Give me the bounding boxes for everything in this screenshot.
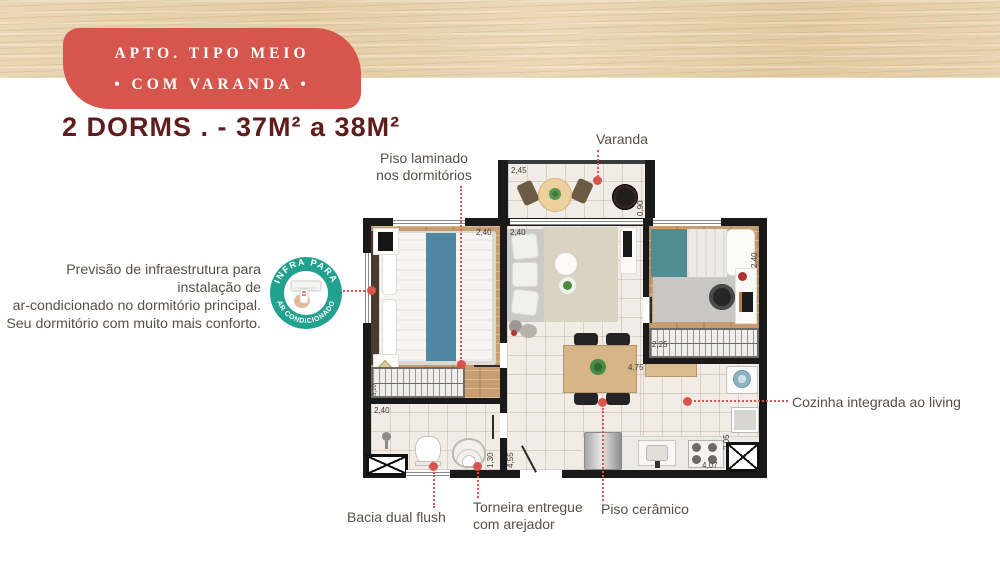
badge-line-1: APTO. TIPO MEIO: [63, 45, 361, 63]
leader-bacia: [433, 472, 435, 508]
sink-basin: [646, 445, 668, 461]
label-piso-laminado: Piso laminado nos dormitórios: [348, 150, 500, 183]
apartment-type-badge: APTO. TIPO MEIO • COM VARANDA •: [63, 28, 361, 109]
burner: [708, 443, 717, 452]
wall-living-dorm2-upper: [643, 226, 649, 297]
marker-piso-ceramico: [598, 398, 607, 407]
bed-runner-blue: [426, 233, 456, 361]
infra-ac-badge-icon: INFRA PARA AR CONDICIONADO: [269, 256, 343, 330]
bath-door-leaf: [492, 415, 494, 439]
laundry-sink: [732, 408, 758, 432]
living-rug: [542, 227, 618, 322]
tv-master-bedroom: [378, 232, 393, 251]
balcony-wall-right: [645, 160, 655, 226]
balcony-wall-left: [498, 160, 508, 226]
window-bathroom: [406, 470, 450, 478]
dim-dorm1-closet: 3,10: [372, 384, 378, 396]
flower-vase: [738, 272, 747, 281]
dining-chair: [574, 392, 598, 405]
dorm2-door-leaf: [650, 297, 652, 323]
wall-right: [759, 218, 767, 478]
label-cozinha: Cozinha integrada ao living: [792, 394, 961, 411]
dim-bath-width: 2,40: [374, 406, 390, 415]
wall-dorm1-living-upper: [500, 226, 507, 343]
entry-door-gap: [520, 470, 562, 478]
tv-living: [623, 231, 632, 257]
shower-head: [382, 432, 391, 441]
label-bacia: Bacia dual flush: [347, 509, 446, 526]
washing-machine-drum: [733, 370, 751, 388]
bbq-grill: [612, 184, 638, 210]
master-wardrobe: [371, 367, 465, 398]
plant-small: [563, 281, 572, 290]
ac-note-line-3: Seu dormitório com muito mais conforto.: [5, 315, 261, 333]
wall-dorm2-kitchen: [643, 358, 767, 364]
leader-cozinha: [694, 400, 788, 402]
label-piso-laminado-line1: Piso laminado: [348, 150, 500, 167]
label-torneira-line1: Torneira entregue: [473, 499, 583, 516]
shaft-box-kitchen: [726, 442, 760, 472]
dog: [520, 324, 537, 338]
sofa-cushion: [511, 289, 540, 317]
leader-varanda: [597, 150, 599, 177]
marker-bacia: [429, 462, 438, 471]
plant-centerpiece: [549, 188, 561, 200]
balcony-railing: [498, 160, 655, 164]
dining-chair: [606, 392, 630, 405]
leader-torneira: [477, 472, 479, 498]
desk-chair: [709, 284, 735, 310]
infra-ac-badge: INFRA PARA AR CONDICIONADO: [269, 256, 343, 330]
dim-dorm2-depth: 2,40: [750, 252, 759, 268]
shower-stem: [385, 441, 388, 449]
table-plant: [588, 357, 608, 377]
marker-torneira: [473, 462, 482, 471]
window-master-bedroom-top: [393, 218, 465, 226]
dim-kitchen-length: 4,07: [702, 461, 718, 470]
single-bed-sheet: [687, 229, 727, 277]
dim-hall-length: 4,55: [506, 452, 515, 468]
ac-infrastructure-note: Previsão de infraestrutura para instalaç…: [5, 261, 261, 333]
page-title: 2 DORMS . - 37M² a 38M²: [62, 112, 400, 143]
label-varanda: Varanda: [596, 131, 648, 148]
dim-varanda-width: 2,45: [511, 166, 527, 175]
marker-varanda: [593, 176, 602, 185]
window-bedroom2-top: [653, 218, 721, 226]
marker-cozinha: [683, 397, 692, 406]
burner: [692, 455, 701, 464]
flyer-canvas: APTO. TIPO MEIO • COM VARANDA • 2 DORMS …: [0, 0, 1000, 562]
wall-dorm1-bathroom: [363, 398, 507, 404]
label-torneira: Torneira entregue com arejador: [473, 499, 583, 532]
laptop: [739, 292, 753, 312]
dim-dorm2-closet: 2,25: [652, 340, 668, 349]
dorm1-door-leaf: [474, 365, 500, 367]
pillow: [382, 299, 397, 357]
dim-living-length: 4,75: [628, 363, 644, 372]
faucet: [655, 461, 660, 468]
wall-dorm1-living-lower: [500, 368, 507, 413]
coffee-table: [554, 252, 578, 276]
dim-living-width: 2,40: [510, 228, 526, 237]
remote-icon: [300, 289, 308, 303]
floor-plan: 2,45 0,90 2,40 2,40 2,40 2,25 4,75 2,40 …: [360, 158, 772, 480]
dim-dorm1-width: 2,40: [476, 228, 492, 237]
marker-piso-laminado: [457, 360, 466, 369]
dim-bath-length: 1,30: [486, 452, 495, 468]
burner: [692, 443, 701, 452]
label-piso-laminado-line2: nos dormitórios: [348, 167, 500, 184]
label-torneira-line2: com arejador: [473, 516, 583, 533]
ac-note-line-2: ar-condicionado no dormitório principal.: [5, 297, 261, 315]
shaft-box: [366, 454, 408, 476]
dim-kitchen-depth: 2,05: [722, 434, 731, 450]
balcony-sliding-door: [510, 219, 643, 225]
leader-piso-ceramico: [602, 408, 604, 501]
sofa-cushion: [512, 262, 538, 287]
label-piso-ceramico: Piso cerâmico: [601, 501, 689, 518]
ac-note-line-1: Previsão de infraestrutura para instalaç…: [5, 261, 261, 297]
marker-ac: [367, 286, 376, 295]
leader-piso-laminado: [460, 186, 462, 362]
single-bed-blanket: [651, 229, 687, 277]
badge-line-2: • COM VARANDA •: [63, 76, 361, 94]
leader-ac: [343, 290, 369, 292]
toy-ball: [511, 330, 517, 336]
dim-varanda-depth: 0,90: [636, 200, 645, 216]
